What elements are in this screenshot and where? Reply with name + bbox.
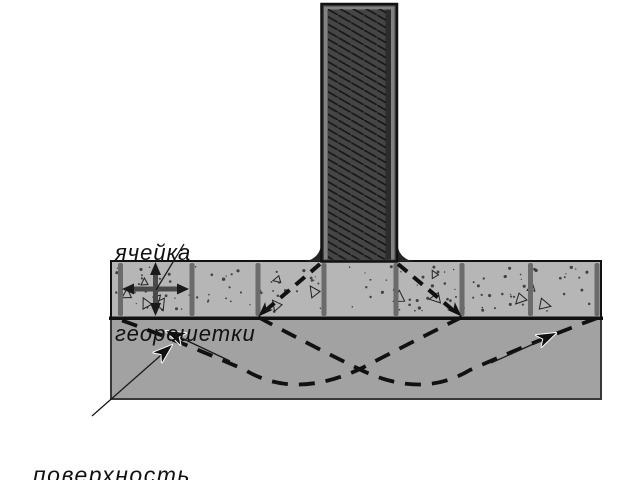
geogrid-wall	[595, 263, 600, 316]
geogrid-wall	[322, 263, 327, 316]
cell-label-line2: георешетки	[115, 320, 256, 347]
figure-canvas: ячейка георешетки поверхность сдвига Рис…	[0, 0, 640, 480]
caption-line1: Рис. 2 Схема увеличения сопротивления	[231, 476, 640, 480]
geogrid-wall	[256, 263, 261, 316]
shear-label-line1: поверхность	[33, 461, 185, 480]
pile-column	[305, 4, 415, 262]
cell-label-line1: ячейка	[115, 239, 256, 266]
column-hatching	[328, 9, 386, 260]
geogrid-wall	[528, 263, 533, 316]
column-base-flare-left	[305, 240, 322, 262]
geogrid-wall	[394, 263, 399, 316]
cell-label: ячейка георешетки	[115, 185, 256, 401]
shear-surface-label: поверхность сдвига	[33, 403, 185, 480]
column-base-flare-right	[397, 240, 414, 262]
geogrid-wall	[460, 263, 465, 316]
figure-caption: Рис. 2 Схема увеличения сопротивления сд…	[231, 421, 640, 480]
